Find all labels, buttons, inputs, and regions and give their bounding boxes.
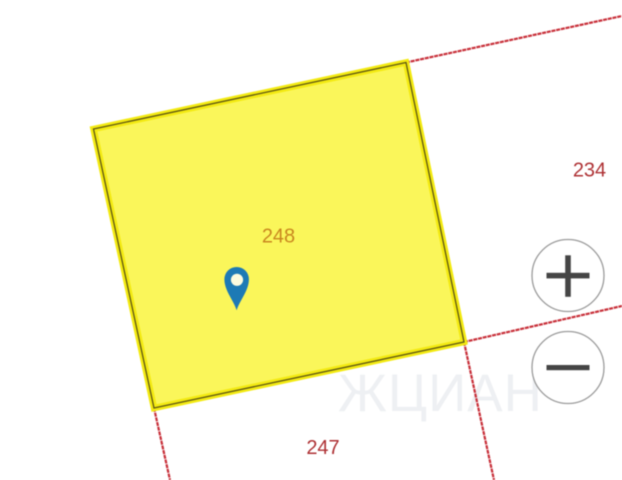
svg-text:248: 248 <box>262 226 295 248</box>
svg-text:234: 234 <box>573 160 606 182</box>
svg-text:ЖЦИАН: ЖЦИАН <box>338 364 543 423</box>
svg-text:247: 247 <box>306 437 339 459</box>
